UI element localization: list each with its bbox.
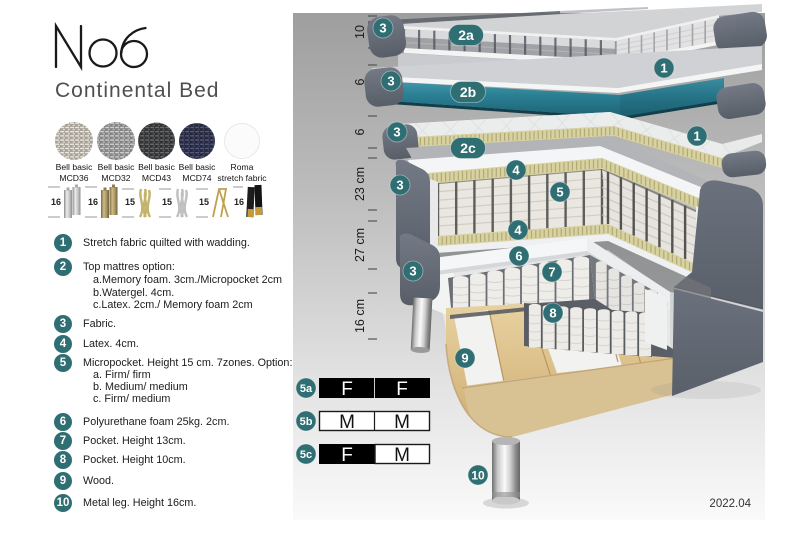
svg-text:3: 3 [387,74,394,89]
svg-text:6: 6 [515,249,522,264]
svg-text:2a: 2a [458,27,474,43]
svg-text:3: 3 [379,21,386,36]
svg-text:1: 1 [660,61,667,76]
svg-text:23 cm: 23 cm [353,167,367,201]
svg-text:27 cm: 27 cm [353,228,367,262]
svg-text:F: F [341,379,353,400]
svg-text:16 cm: 16 cm [353,299,367,333]
svg-text:3: 3 [409,264,416,279]
svg-text:8: 8 [549,306,556,321]
svg-text:6: 6 [353,128,367,135]
svg-text:9: 9 [461,351,468,366]
svg-text:2022.04: 2022.04 [709,498,751,510]
svg-text:4: 4 [512,163,520,178]
svg-text:5a: 5a [300,383,313,395]
svg-text:4: 4 [514,223,522,238]
svg-text:10: 10 [353,25,367,39]
svg-text:F: F [396,379,408,400]
svg-text:M: M [339,412,355,433]
svg-text:2b: 2b [460,84,476,100]
svg-text:5c: 5c [300,449,312,461]
svg-text:10: 10 [471,468,485,482]
svg-text:2c: 2c [460,140,476,156]
svg-text:3: 3 [393,125,400,140]
svg-text:5: 5 [556,185,563,200]
svg-text:1: 1 [693,129,700,144]
svg-text:M: M [394,412,410,433]
svg-text:M: M [394,445,410,466]
svg-text:7: 7 [548,265,555,280]
svg-text:F: F [341,445,353,466]
svg-text:3: 3 [396,178,403,193]
svg-text:5b: 5b [300,416,313,428]
